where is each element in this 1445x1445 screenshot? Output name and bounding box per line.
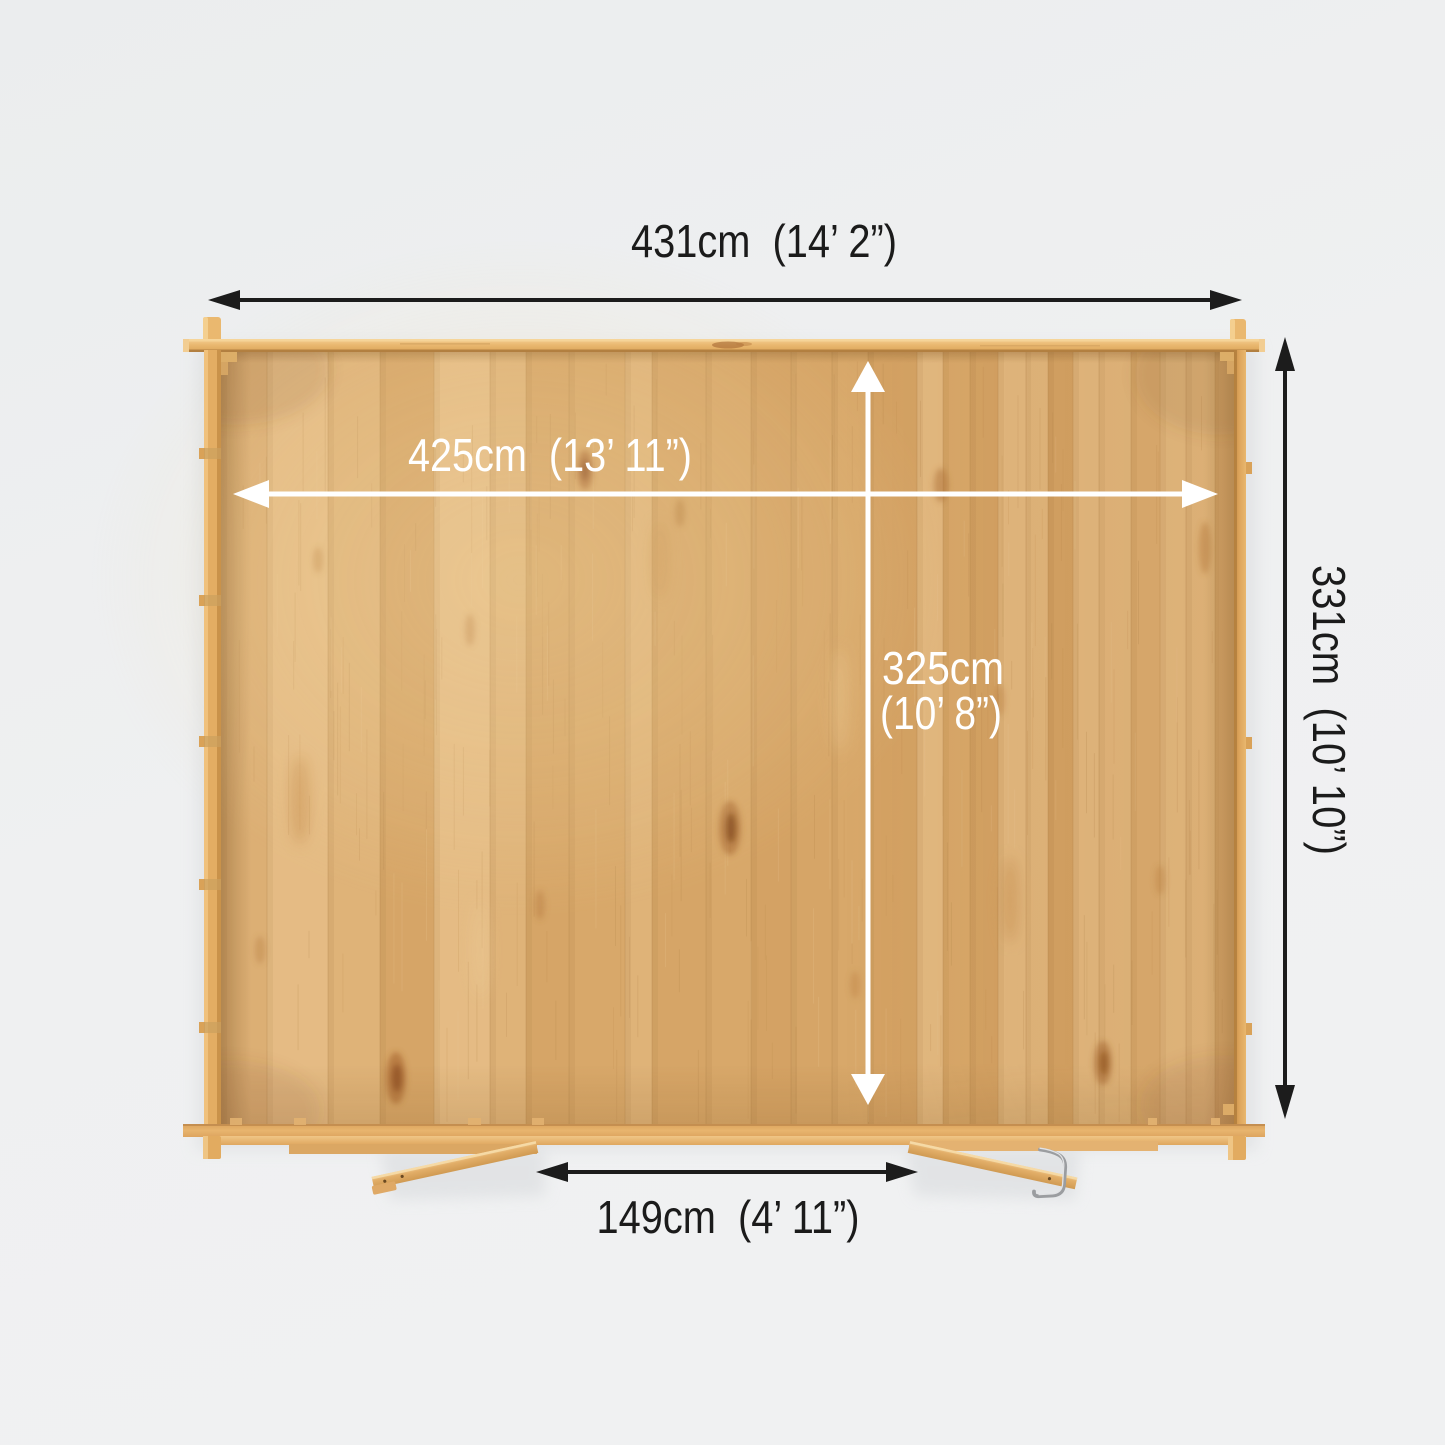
svg-text:425cm (13’ 11”): 425cm (13’ 11”) [408, 429, 692, 481]
svg-text:431cm (14’ 2”): 431cm (14’ 2”) [631, 215, 897, 267]
svg-text:331cm (10’ 10”): 331cm (10’ 10”) [1303, 565, 1355, 855]
svg-text:(10’ 8”): (10’ 8”) [880, 687, 1002, 739]
svg-text:149cm (4’ 11”): 149cm (4’ 11”) [597, 1191, 860, 1243]
